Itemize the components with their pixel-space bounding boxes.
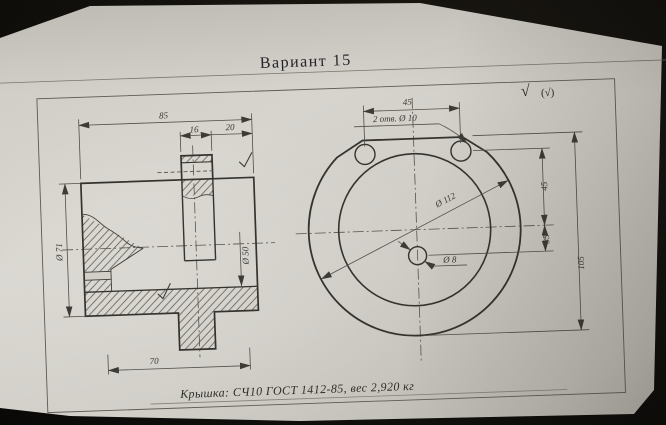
hidden-line bbox=[158, 171, 213, 173]
dimension-label: 16 bbox=[189, 124, 199, 134]
dimension-label: Ø 71 bbox=[54, 243, 65, 262]
machining-mark-icon bbox=[239, 152, 252, 166]
surface-roughness-mark: √ (√) bbox=[521, 82, 555, 100]
bolt-hole-left bbox=[355, 144, 376, 165]
dimension-label: Ø 50 bbox=[240, 246, 251, 266]
hatch-boss-section bbox=[182, 179, 214, 196]
right-view-dimension-lines bbox=[315, 98, 589, 339]
holes-note-label: 2 отв. Ø 10 bbox=[373, 113, 418, 125]
dimension-label: 70 bbox=[149, 356, 159, 366]
dimension-label: Ø 8 bbox=[442, 254, 457, 265]
technical-drawing-svg: Вариант 15 √ (√) bbox=[0, 0, 666, 425]
dimension-label: 35 bbox=[541, 234, 551, 245]
horizontal-centerline bbox=[296, 225, 556, 234]
bolt-hole-right bbox=[451, 141, 472, 162]
dimension-label: 20 bbox=[225, 122, 235, 132]
photo-scene: Вариант 15 √ (√) bbox=[0, 0, 666, 425]
right-view-front: 45 2 отв. Ø 10 Ø 112 Ø 8 45 35 105 bbox=[291, 91, 590, 368]
dimension-label: 105 bbox=[576, 256, 586, 270]
left-view-section: 85 16 20 Ø 71 Ø 50 70 bbox=[49, 107, 279, 377]
dimension-label: 85 bbox=[159, 110, 169, 120]
hatch-bottom-flange bbox=[85, 286, 260, 353]
check-in-parens-icon: (√) bbox=[541, 87, 555, 99]
dimension-label: Ø 112 bbox=[433, 190, 458, 210]
dimension-label: 45 bbox=[403, 97, 413, 107]
dimension-label: 45 bbox=[539, 181, 549, 191]
check-icon: √ bbox=[521, 83, 531, 100]
page-title: Вариант 15 bbox=[259, 52, 352, 72]
caption: Крышка: СЧ10 ГОСТ 1412-85, вес 2,920 кг bbox=[179, 379, 415, 401]
